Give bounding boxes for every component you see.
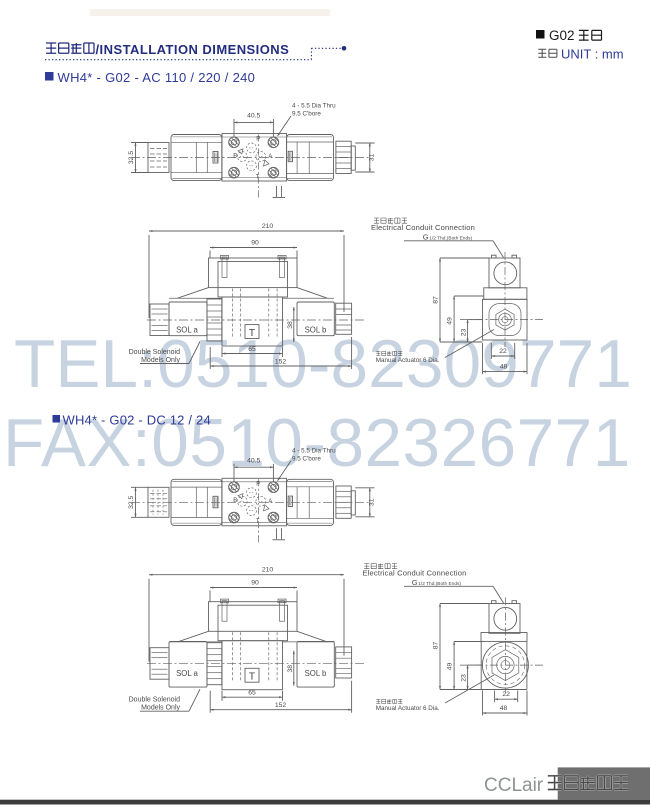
- svg-text:4 - 5.5 Dia Thru: 4 - 5.5 Dia Thru: [292, 103, 336, 110]
- svg-text:22: 22: [499, 348, 507, 355]
- svg-text:SOL b: SOL b: [305, 326, 327, 335]
- svg-text:Electrical Conduit Connection: Electrical Conduit Connection: [371, 223, 475, 232]
- svg-text:90: 90: [251, 240, 259, 247]
- svg-text:65: 65: [248, 346, 256, 353]
- svg-text:22: 22: [502, 691, 510, 698]
- svg-text:38: 38: [287, 665, 294, 673]
- svg-text:SOL a: SOL a: [176, 326, 198, 335]
- svg-text:48: 48: [500, 705, 508, 712]
- svg-text:23: 23: [460, 674, 467, 682]
- svg-text:31: 31: [369, 498, 376, 506]
- svg-text:Models Only: Models Only: [141, 357, 180, 364]
- svg-text:CCLair: CCLair: [484, 775, 544, 796]
- svg-text:SOL a: SOL a: [176, 669, 198, 678]
- svg-text:40.5: 40.5: [247, 113, 260, 120]
- svg-text:T: T: [256, 174, 260, 180]
- svg-text:87: 87: [433, 642, 440, 650]
- svg-text:T: T: [249, 671, 256, 683]
- svg-text:Double Solenoid: Double Solenoid: [129, 697, 180, 704]
- svg-text:G02: G02: [549, 28, 575, 43]
- svg-text:49: 49: [447, 663, 454, 671]
- svg-text:P: P: [256, 137, 260, 143]
- svg-text:Manual Actuator 6 Dia.: Manual Actuator 6 Dia.: [376, 705, 440, 712]
- svg-text:90: 90: [251, 580, 259, 587]
- svg-text:G: G: [423, 233, 429, 242]
- svg-text:G: G: [412, 578, 418, 587]
- svg-text:4 - 5.5 Dia Thru: 4 - 5.5 Dia Thru: [292, 447, 336, 454]
- svg-text:A: A: [268, 154, 272, 160]
- svg-text:TEL:0510-82309771: TEL:0510-82309771: [14, 327, 632, 402]
- svg-text:23: 23: [460, 329, 467, 337]
- svg-text:P: P: [256, 481, 260, 487]
- svg-text:32.5: 32.5: [128, 151, 135, 164]
- svg-text:31: 31: [369, 154, 376, 162]
- svg-text:49: 49: [447, 317, 454, 325]
- svg-text:210: 210: [262, 567, 274, 574]
- svg-text:Electrical Conduit Connection: Electrical Conduit Connection: [363, 569, 467, 578]
- svg-text:38: 38: [287, 321, 294, 329]
- svg-text:WH4* - G02 - DC 12 / 24: WH4* - G02 - DC 12 / 24: [63, 413, 211, 428]
- svg-text:T: T: [249, 327, 256, 339]
- svg-text:Models Only: Models Only: [141, 705, 180, 712]
- svg-text:WH4* - G02 - AC 110 / 220 / 24: WH4* - G02 - AC 110 / 220 / 240: [58, 70, 256, 85]
- svg-text:A: A: [268, 499, 272, 505]
- svg-text:B: B: [233, 153, 237, 159]
- svg-text:48: 48: [500, 364, 508, 371]
- svg-text:B: B: [233, 498, 237, 504]
- svg-text:65: 65: [248, 690, 256, 697]
- svg-text:87: 87: [433, 296, 440, 304]
- svg-text:210: 210: [262, 223, 274, 230]
- svg-text:UNIT : mm: UNIT : mm: [561, 47, 624, 62]
- svg-text:9.5 C'bore: 9.5 C'bore: [292, 455, 321, 462]
- svg-text:/INSTALLATION DIMENSIONS: /INSTALLATION DIMENSIONS: [96, 42, 290, 57]
- svg-text:T: T: [256, 519, 260, 525]
- svg-text:152: 152: [275, 359, 287, 366]
- svg-text:Double Solenoid: Double Solenoid: [129, 349, 180, 356]
- svg-text:Manual Actuator 6 Dia.: Manual Actuator 6 Dia.: [376, 357, 440, 364]
- svg-text:40.5: 40.5: [247, 457, 260, 464]
- svg-text:9.5 C'bore: 9.5 C'bore: [292, 111, 321, 118]
- svg-text:32.5: 32.5: [128, 495, 135, 508]
- svg-text:152: 152: [275, 702, 287, 709]
- svg-text:SOL b: SOL b: [305, 669, 327, 678]
